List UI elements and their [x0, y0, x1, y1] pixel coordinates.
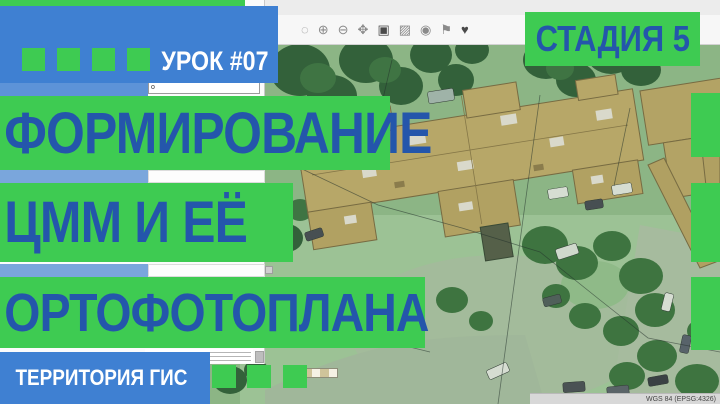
decor-square: [691, 93, 720, 157]
crs-label: WGS 84 (EPSG:4326): [646, 396, 716, 403]
panel-text-input[interactable]: o: [148, 82, 260, 94]
decor-square: [283, 365, 307, 388]
video-thumbnail: ◌ ⊕ ⊖ ✥ ▣ ▨ ◉ ⚑ ♥ o WGS 84 (EPSG:4326) У…: [0, 0, 720, 404]
flag-icon[interactable]: ⚑: [440, 23, 452, 36]
brand-label: ТЕРРИТОРИЯ ГИС: [0, 365, 187, 391]
zoom-out-icon[interactable]: ⊖: [338, 23, 349, 36]
decor-square: [22, 48, 45, 71]
decor-square: [691, 183, 720, 262]
panel-scrollbar[interactable]: [255, 351, 264, 363]
stage-badge-block: СТАДИЯ 5: [525, 12, 700, 66]
lesson-number-label: УРОК #07: [144, 46, 268, 77]
title-line-2: ЦММ И ЕЁ: [0, 183, 293, 262]
heart-icon[interactable]: ♥: [461, 23, 469, 36]
zoom-in-icon[interactable]: ⊕: [318, 23, 329, 36]
image-icon[interactable]: ▣: [377, 23, 389, 36]
panel-gap: [148, 264, 265, 277]
stage-label: СТАДИЯ 5: [535, 18, 689, 60]
title-line-3: ОРТОФОТОПЛАНА: [0, 277, 425, 348]
brand-badge-block: ТЕРРИТОРИЯ ГИС: [0, 352, 210, 404]
decor-square: [92, 48, 115, 71]
selection-circle-icon[interactable]: ◌: [301, 23, 309, 36]
statusbar: WGS 84 (EPSG:4326): [530, 393, 720, 404]
lesson-badge-block: УРОК #07: [0, 6, 278, 83]
blue-accent-strip: [0, 170, 148, 183]
image-outline-icon[interactable]: ▨: [399, 23, 411, 36]
decor-square: [212, 365, 236, 388]
panel-small-icon: [265, 266, 273, 274]
title-line-1: ФОРМИРОВАНИЕ: [0, 96, 390, 170]
blue-accent-strip: [0, 264, 148, 277]
pan-icon[interactable]: ✥: [358, 23, 369, 36]
camera-icon[interactable]: ◉: [420, 23, 431, 36]
map-scale-bar: [302, 368, 338, 378]
decor-square: [247, 365, 271, 388]
decor-square: [57, 48, 80, 71]
panel-gap: [148, 170, 265, 183]
decor-square: [691, 277, 720, 350]
blue-accent-strip: [0, 83, 148, 96]
